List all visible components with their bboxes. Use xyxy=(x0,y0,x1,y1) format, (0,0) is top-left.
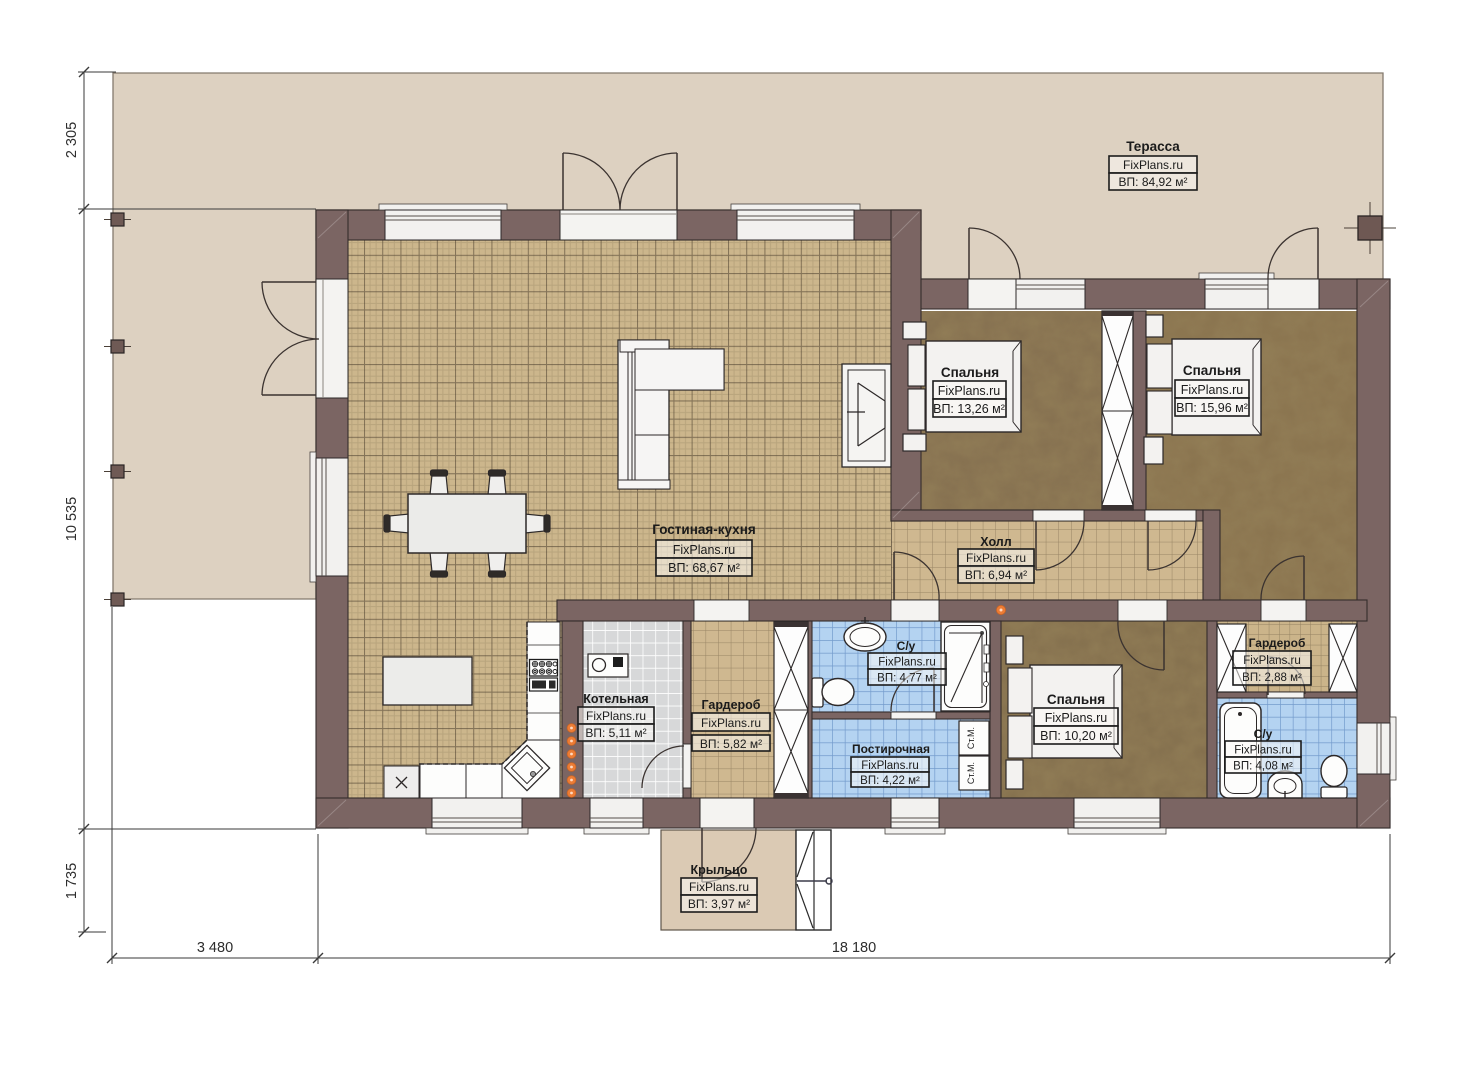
svg-text:Спальня: Спальня xyxy=(941,365,999,380)
svg-text:Спальня: Спальня xyxy=(1183,363,1241,378)
svg-text:ВП: 4,77 м²: ВП: 4,77 м² xyxy=(877,673,937,685)
svg-text:С/у: С/у xyxy=(897,639,916,653)
svg-text:FixPlans.ru: FixPlans.ru xyxy=(861,760,919,772)
svg-text:3 480: 3 480 xyxy=(197,940,233,956)
svg-text:ВП: 84,92 м²: ВП: 84,92 м² xyxy=(1119,175,1188,189)
svg-text:ВП: 3,97 м²: ВП: 3,97 м² xyxy=(688,897,750,911)
svg-text:FixPlans.ru: FixPlans.ru xyxy=(1234,745,1292,757)
svg-text:ВП: 6,94 м²: ВП: 6,94 м² xyxy=(965,568,1027,582)
svg-text:Спальня: Спальня xyxy=(1047,692,1105,707)
svg-text:Холл: Холл xyxy=(980,535,1011,549)
svg-text:Постирочная: Постирочная xyxy=(852,742,930,756)
svg-text:FixPlans.ru: FixPlans.ru xyxy=(586,709,646,723)
svg-text:2 305: 2 305 xyxy=(64,122,80,158)
svg-text:18 180: 18 180 xyxy=(832,940,876,956)
svg-text:FixPlans.ru: FixPlans.ru xyxy=(938,384,1001,398)
svg-text:С/у: С/у xyxy=(1254,727,1273,741)
svg-text:ВП: 4,08 м²: ВП: 4,08 м² xyxy=(1233,761,1293,773)
svg-text:ВП: 5,11 м²: ВП: 5,11 м² xyxy=(585,726,646,740)
svg-text:FixPlans.ru: FixPlans.ru xyxy=(1243,655,1301,667)
svg-text:FixPlans.ru: FixPlans.ru xyxy=(701,716,761,730)
svg-text:ВП: 4,22 м²: ВП: 4,22 м² xyxy=(860,775,920,787)
svg-text:Гардероб: Гардероб xyxy=(1249,636,1306,650)
svg-text:FixPlans.ru: FixPlans.ru xyxy=(1045,711,1108,725)
svg-text:ВП: 13,26 м²: ВП: 13,26 м² xyxy=(933,402,1005,416)
svg-text:ВП: 68,67 м²: ВП: 68,67 м² xyxy=(668,561,740,575)
svg-text:Гардероб: Гардероб xyxy=(701,698,760,712)
svg-text:FixPlans.ru: FixPlans.ru xyxy=(689,880,749,894)
svg-text:FixPlans.ru: FixPlans.ru xyxy=(1123,158,1183,172)
svg-text:ВП: 10,20 м²: ВП: 10,20 м² xyxy=(1040,729,1112,743)
svg-text:Ст.М.: Ст.М. xyxy=(966,762,976,784)
svg-text:ВП: 5,82 м²: ВП: 5,82 м² xyxy=(700,737,762,751)
svg-text:FixPlans.ru: FixPlans.ru xyxy=(878,657,936,669)
svg-text:FixPlans.ru: FixPlans.ru xyxy=(966,551,1026,565)
svg-text:ВП: 2,88 м²: ВП: 2,88 м² xyxy=(1242,672,1302,684)
svg-text:Крыльцо: Крыльцо xyxy=(691,863,748,877)
svg-text:1 735: 1 735 xyxy=(64,863,80,899)
svg-text:Гостиная-кухня: Гостиная-кухня xyxy=(652,522,755,537)
svg-text:Котельная: Котельная xyxy=(583,692,648,706)
svg-text:ВП: 15,96 м²: ВП: 15,96 м² xyxy=(1176,401,1248,415)
svg-text:Терасса: Терасса xyxy=(1126,139,1180,154)
svg-text:FixPlans.ru: FixPlans.ru xyxy=(1181,383,1244,397)
svg-text:10 535: 10 535 xyxy=(64,497,80,541)
svg-text:Ст.М.: Ст.М. xyxy=(966,727,976,749)
svg-text:FixPlans.ru: FixPlans.ru xyxy=(673,543,736,557)
